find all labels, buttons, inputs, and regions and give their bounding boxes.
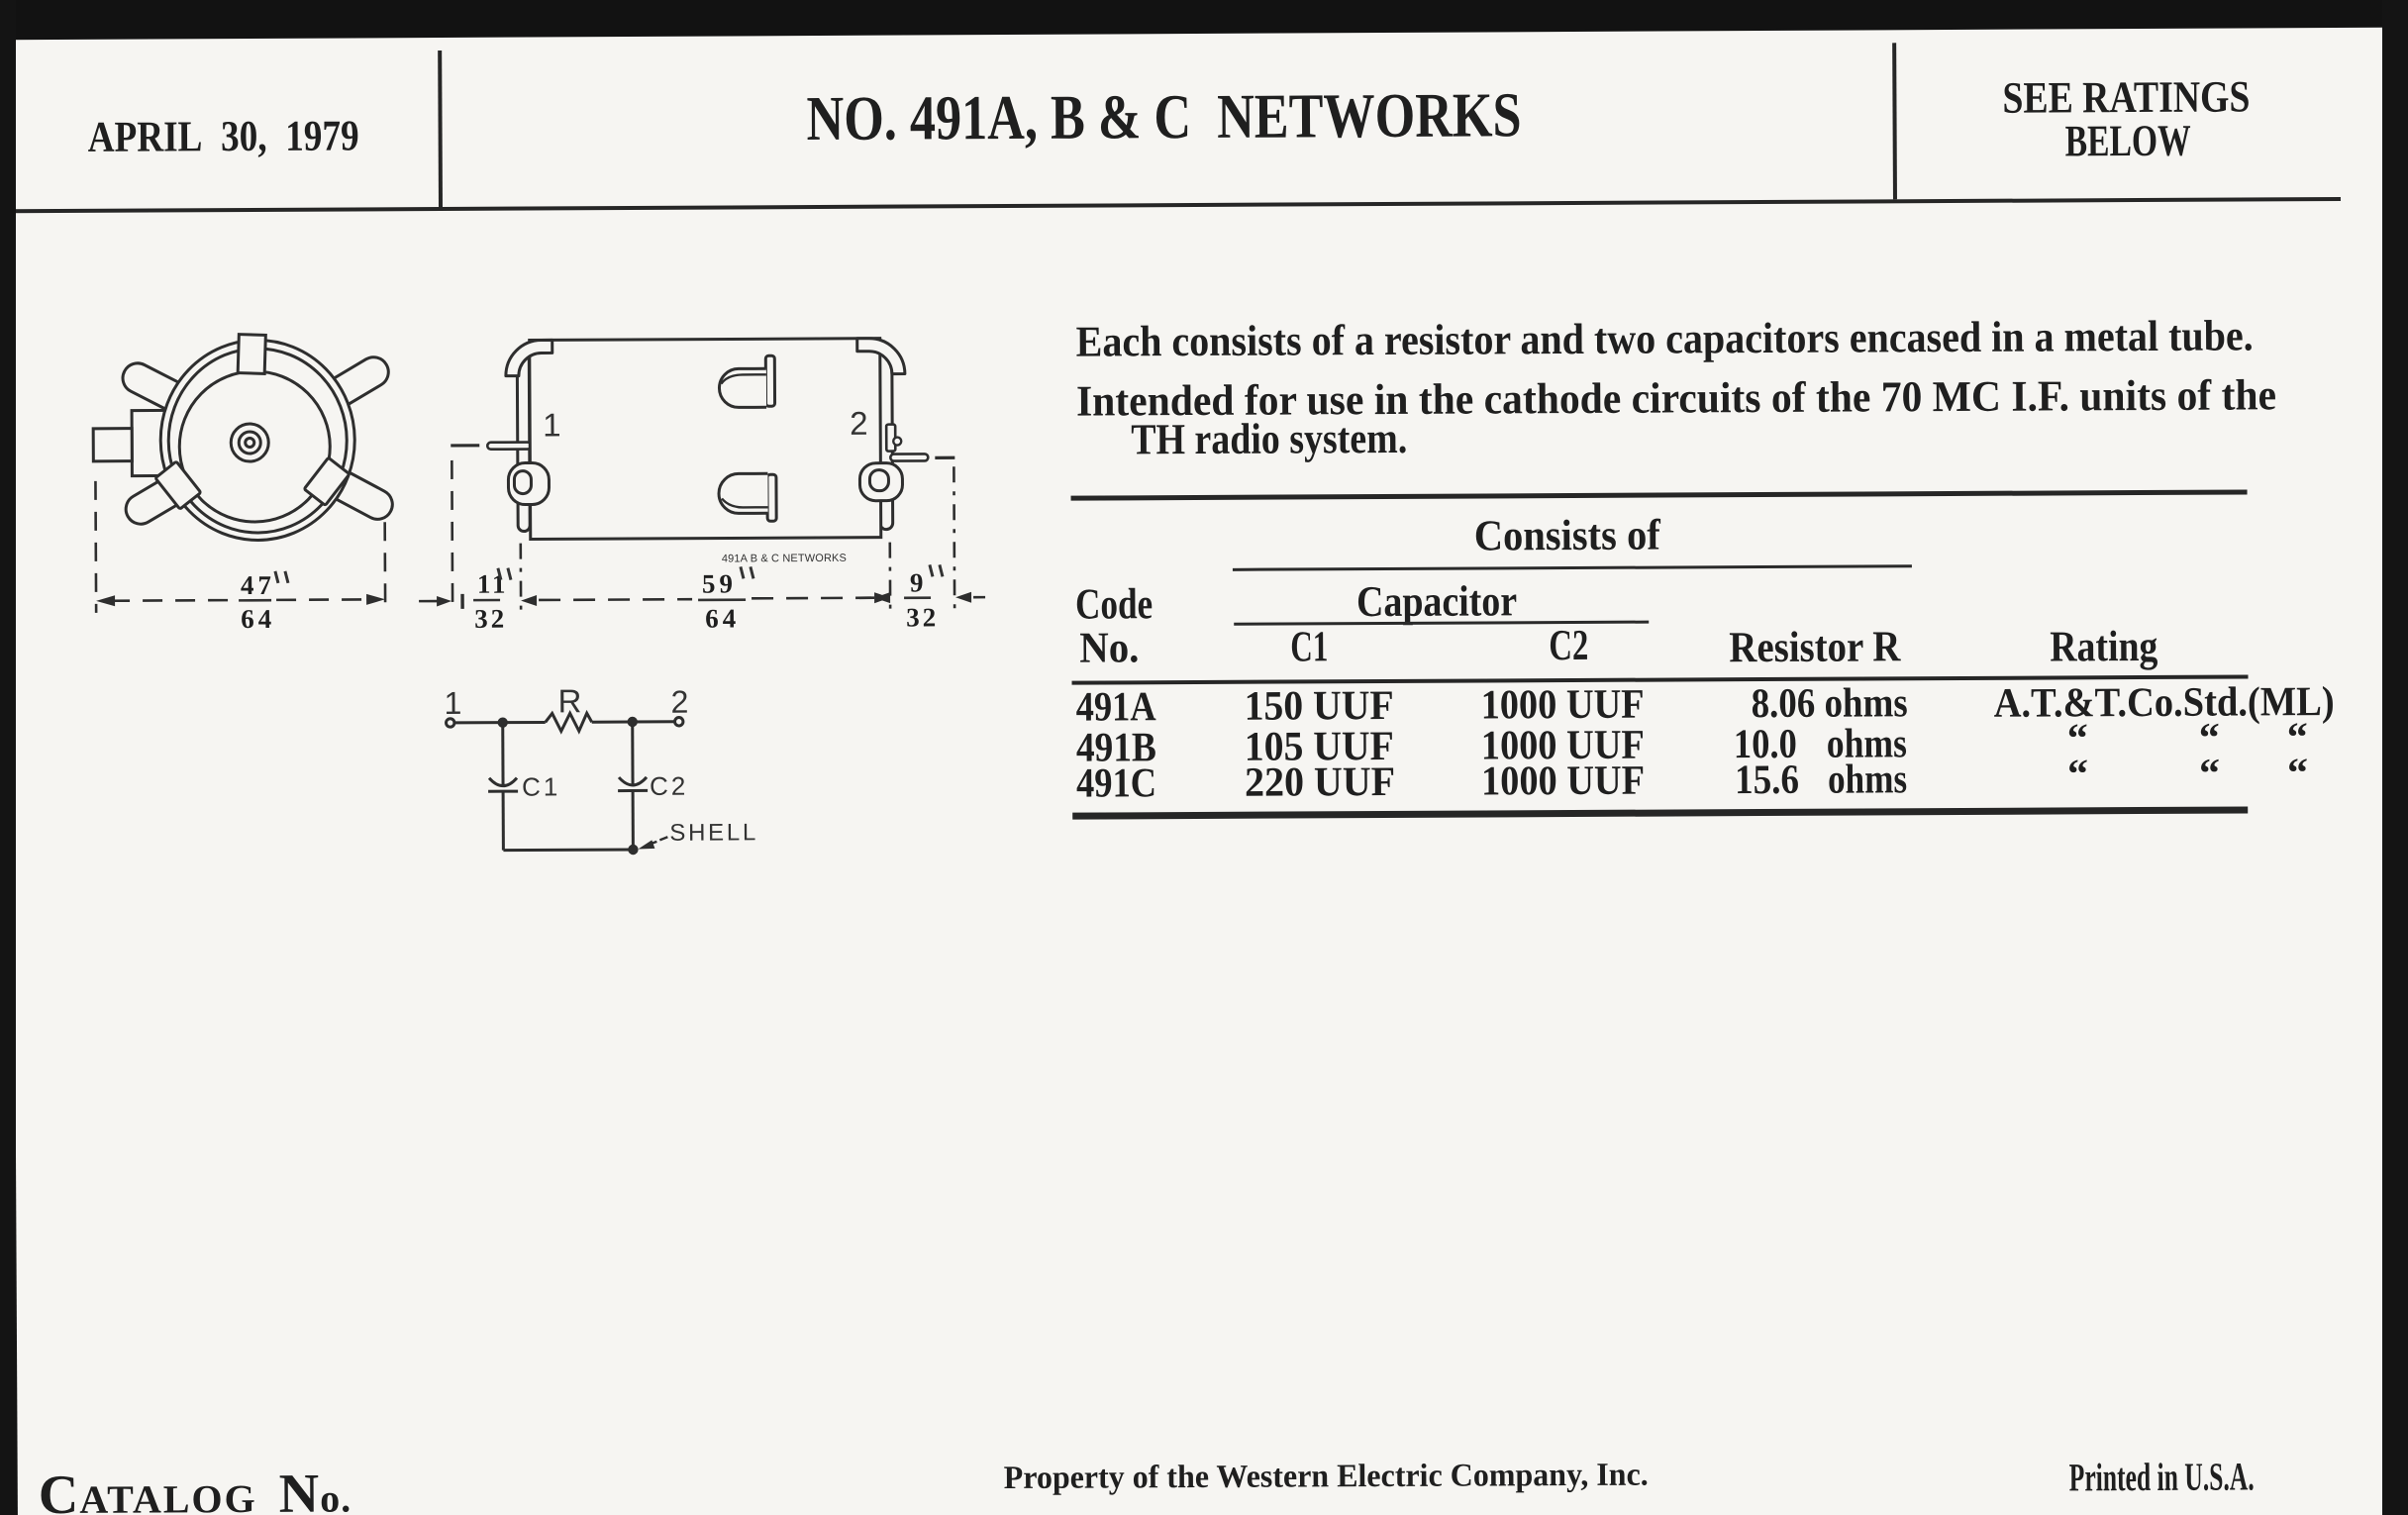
svg-text:Resistor R: Resistor R <box>1729 622 1901 671</box>
svg-text:47: 47 <box>241 570 275 600</box>
svg-text:491A B & C NETWORKS: 491A B & C NETWORKS <box>722 553 847 565</box>
svg-text:Rating: Rating <box>2050 622 2157 671</box>
svg-text:BELOW: BELOW <box>2065 116 2191 166</box>
svg-text:15.6: 15.6 <box>1735 757 1799 803</box>
svg-text:2: 2 <box>671 684 689 720</box>
svg-text:1000 UUF: 1000 UUF <box>1481 758 1645 805</box>
svg-text:2: 2 <box>850 405 868 442</box>
svg-text:APRIL 30, 1979: APRIL 30, 1979 <box>87 111 358 160</box>
svg-text:SHELL: SHELL <box>669 819 755 846</box>
svg-text:11: 11 <box>477 569 509 599</box>
svg-text:TH radio system.: TH radio system. <box>1131 414 1407 463</box>
svg-text:64: 64 <box>705 603 740 633</box>
svg-text:150 UUF: 150 UUF <box>1245 683 1394 730</box>
svg-text:A.T.&T.Co.Std.(ML): A.T.&T.Co.Std.(ML) <box>1994 679 2335 727</box>
svg-text:Each consists of a resistor an: Each consists of a resistor and two capa… <box>1076 311 2254 365</box>
svg-text:Code: Code <box>1075 579 1153 628</box>
svg-text:Consists of: Consists of <box>1474 511 1661 560</box>
svg-text:32: 32 <box>474 604 507 634</box>
svg-text:Property of the Western Electr: Property of the Western Electric Company… <box>1004 1458 1649 1496</box>
svg-text:C2: C2 <box>1549 621 1588 669</box>
svg-text:8.06 ohms: 8.06 ohms <box>1752 680 1908 727</box>
svg-text:220 UUF: 220 UUF <box>1245 759 1395 806</box>
svg-text:9: 9 <box>910 567 924 597</box>
svg-text:1: 1 <box>543 406 561 443</box>
svg-text:59: 59 <box>702 568 737 598</box>
svg-text:SEE RATINGS: SEE RATINGS <box>2002 71 2250 122</box>
svg-text:491A: 491A <box>1076 684 1157 730</box>
svg-text:1: 1 <box>445 685 462 721</box>
svg-text:32: 32 <box>906 602 939 632</box>
svg-text:ohms: ohms <box>1828 757 1907 802</box>
svg-text:R: R <box>558 682 582 719</box>
svg-text:No.: No. <box>1079 623 1139 671</box>
svg-text:C1: C1 <box>1290 622 1328 670</box>
svg-text:“: “ <box>2199 752 2220 797</box>
svg-text:“: “ <box>2287 751 2308 796</box>
svg-text:64: 64 <box>241 604 275 634</box>
svg-text:1000 UUF: 1000 UUF <box>1481 682 1645 729</box>
svg-text:Printed in U.S.A.: Printed in U.S.A. <box>2069 1454 2255 1499</box>
svg-text:C2: C2 <box>650 771 688 801</box>
svg-text:Capacitor: Capacitor <box>1356 576 1517 626</box>
svg-text:491C: 491C <box>1076 760 1156 806</box>
svg-text:NO. 491A, B & C NETWORKS: NO. 491A, B & C NETWORKS <box>806 79 1521 153</box>
svg-text:C1: C1 <box>522 771 560 801</box>
svg-text:“: “ <box>2067 752 2088 797</box>
